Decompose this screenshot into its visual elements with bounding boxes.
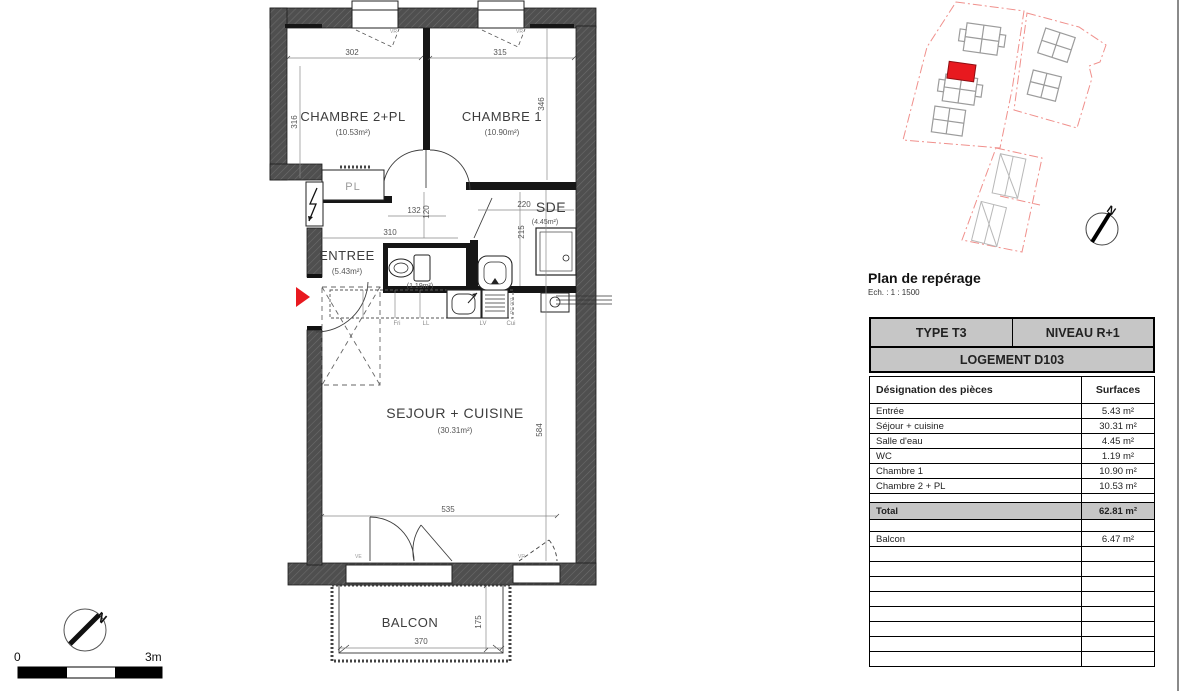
pl-closet-label: PL (345, 181, 360, 193)
total-row: Total62.81 m² (870, 503, 1155, 520)
logement-row: LOGEMENT D103 (869, 348, 1155, 373)
svg-text:VE: VE (355, 554, 362, 560)
site-plan: N (870, 0, 1182, 262)
label-wc-area: (1.19m²) (407, 283, 433, 290)
dimension-labels: 302 315 316 346 310 132 120 220 215 535 … (290, 48, 546, 646)
door-jambs (307, 274, 322, 330)
svg-text:302: 302 (345, 48, 359, 57)
label-chambre2: CHAMBRE 2+PL (300, 109, 405, 124)
highlighted-unit (947, 61, 976, 82)
surface-table: TYPE T3 NIVEAU R+1 LOGEMENT D103 Désigna… (869, 317, 1155, 667)
reperage-title-block: Plan de repérage Ech. : 1 : 1500 (868, 270, 1158, 297)
label-sejour: SEJOUR + CUISINE (386, 405, 524, 421)
svg-text:(10.53m²): (10.53m²) (336, 128, 371, 137)
empty-row (870, 607, 1155, 622)
pc-tag: PC 001 (510, 297, 516, 314)
table-row: Chambre 2 + PL10.53 m² (870, 479, 1155, 494)
svg-text:315: 315 (493, 48, 507, 57)
svg-text:VR: VR (390, 29, 397, 35)
svg-text:316: 316 (290, 115, 299, 129)
empty-row (870, 577, 1155, 592)
reperage-scale: Ech. : 1 : 1500 (868, 288, 1158, 297)
svg-text:175: 175 (474, 615, 483, 629)
washer-tag: LL (423, 321, 430, 327)
page-right-border (1177, 0, 1179, 691)
label-entree: ENTREE (319, 248, 375, 263)
reperage-title: Plan de repérage (868, 270, 1158, 286)
closet-pl: PL (322, 167, 384, 200)
dishwasher-icon (482, 290, 508, 318)
type-cell: TYPE T3 (871, 319, 1012, 346)
col-surfaces: Surfaces (1082, 377, 1155, 404)
svg-text:120: 120 (422, 205, 431, 219)
kitchen-counter: Fri LL LV Cui PC 001 (330, 290, 516, 327)
dishwasher-tag: LV (480, 321, 487, 327)
page: PL Fri LL (0, 0, 1182, 691)
fridge-tag: Fri (394, 321, 401, 327)
svg-text:3m: 3m (145, 650, 162, 664)
svg-text:VR: VR (516, 29, 523, 35)
electrical-panel (306, 182, 323, 226)
cooker-tag: Cui (506, 321, 515, 327)
svg-text:(5.43m²): (5.43m²) (332, 267, 363, 276)
north-arrow-plan: N (64, 609, 110, 651)
svg-text:(30.31m²): (30.31m²) (438, 426, 473, 435)
column-header-row: Désignation des pièces Surfaces (870, 377, 1155, 404)
label-chambre1: CHAMBRE 1 (462, 109, 542, 124)
table-row: Salle d'eau4.45 m² (870, 434, 1155, 449)
svg-text:370: 370 (414, 637, 428, 646)
door-arcs (316, 150, 557, 561)
floor-plan: PL Fri LL (0, 0, 860, 691)
sink-icon (452, 294, 475, 314)
empty-row (870, 547, 1155, 562)
table-row: Séjour + cuisine30.31 m² (870, 419, 1155, 434)
label-sde: SDE (536, 199, 566, 215)
balcon-row: Balcon6.47 m² (870, 532, 1155, 547)
toilet-icon (389, 255, 430, 281)
niveau-cell: NIVEAU R+1 (1012, 319, 1154, 346)
svg-text:584: 584 (535, 423, 544, 437)
svg-text:(4.45m²): (4.45m²) (532, 219, 558, 226)
table-header-row: TYPE T3 NIVEAU R+1 (869, 317, 1155, 348)
logement-cell: LOGEMENT D103 (871, 348, 1153, 371)
table-row: Entrée5.43 m² (870, 404, 1155, 419)
svg-text:220: 220 (517, 200, 531, 209)
svg-text:215: 215 (517, 225, 526, 239)
svg-text:132: 132 (407, 206, 421, 215)
svg-text:(10.90m²): (10.90m²) (485, 128, 520, 137)
entrance-arrow-icon (296, 287, 310, 307)
table-row: WC1.19 m² (870, 449, 1155, 464)
entry-dashed-zone (322, 287, 380, 385)
surfaces-table: Désignation des pièces Surfaces Entrée5.… (869, 376, 1155, 667)
shutter-marks (356, 29, 525, 47)
svg-text:310: 310 (383, 228, 397, 237)
scale-bar: 0 3m (14, 650, 162, 678)
table-row: Chambre 110.90 m² (870, 464, 1155, 479)
svg-text:0: 0 (14, 650, 21, 664)
north-arrow-site: N (1086, 204, 1118, 245)
spacer-row (870, 520, 1155, 532)
empty-row (870, 592, 1155, 607)
shower-icon (536, 228, 576, 275)
empty-row (870, 562, 1155, 577)
empty-row (870, 637, 1155, 652)
empty-row (870, 622, 1155, 637)
label-balcon: BALCON (382, 615, 438, 630)
col-designation: Désignation des pièces (870, 377, 1082, 404)
spacer-row (870, 494, 1155, 503)
svg-text:VR: VR (518, 554, 525, 560)
svg-text:535: 535 (441, 505, 455, 514)
empty-row (870, 652, 1155, 667)
